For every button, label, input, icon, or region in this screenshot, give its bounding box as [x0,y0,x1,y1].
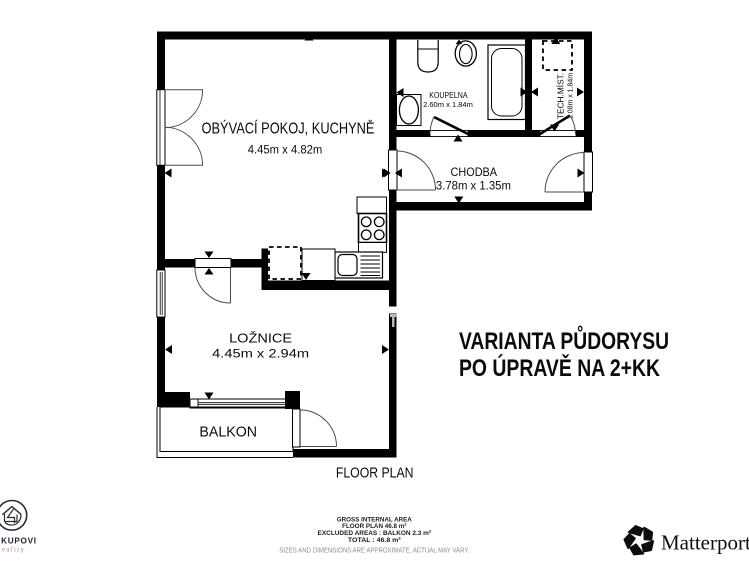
svg-text:CHODBA: CHODBA [451,165,498,179]
svg-text:2.60m x 1.84m: 2.60m x 1.84m [423,100,473,109]
svg-text:LOŽNICE: LOŽNICE [229,330,292,345]
svg-text:Matterport: Matterport [661,531,749,555]
svg-text:FLOOR PLAN: FLOOR PLAN [336,465,414,482]
svg-text:TOTAL : 46.8 m²: TOTAL : 46.8 m² [348,537,402,544]
svg-text:4.45m x 2.94m: 4.45m x 2.94m [212,347,309,361]
svg-text:OBÝVACÍ POKOJ, KUCHYNĚ: OBÝVACÍ POKOJ, KUCHYNĚ [202,121,375,138]
svg-text:3.78m x 1.35m: 3.78m x 1.35m [436,180,511,193]
svg-text:VARIANTA PŮDORYSU: VARIANTA PŮDORYSU [459,325,669,355]
svg-text:TECH.MÍST.: TECH.MÍST. [556,73,566,119]
svg-text:UKUPOVI: UKUPOVI [0,537,37,546]
svg-text:BALKON: BALKON [199,423,257,440]
svg-text:1.08m x 1.84m: 1.08m x 1.84m [565,73,574,119]
svg-text:KOUPELNA: KOUPELNA [429,90,468,100]
svg-text:PO ÚPRAVĚ NA 2+KK: PO ÚPRAVĚ NA 2+KK [459,354,661,382]
svg-text:Reality: Reality [0,546,25,554]
svg-text:SIZES AND DIMENSIONS ARE APPRO: SIZES AND DIMENSIONS ARE APPROXIMATE, AC… [279,545,469,554]
svg-text:4.45m x 4.82m: 4.45m x 4.82m [248,144,323,157]
